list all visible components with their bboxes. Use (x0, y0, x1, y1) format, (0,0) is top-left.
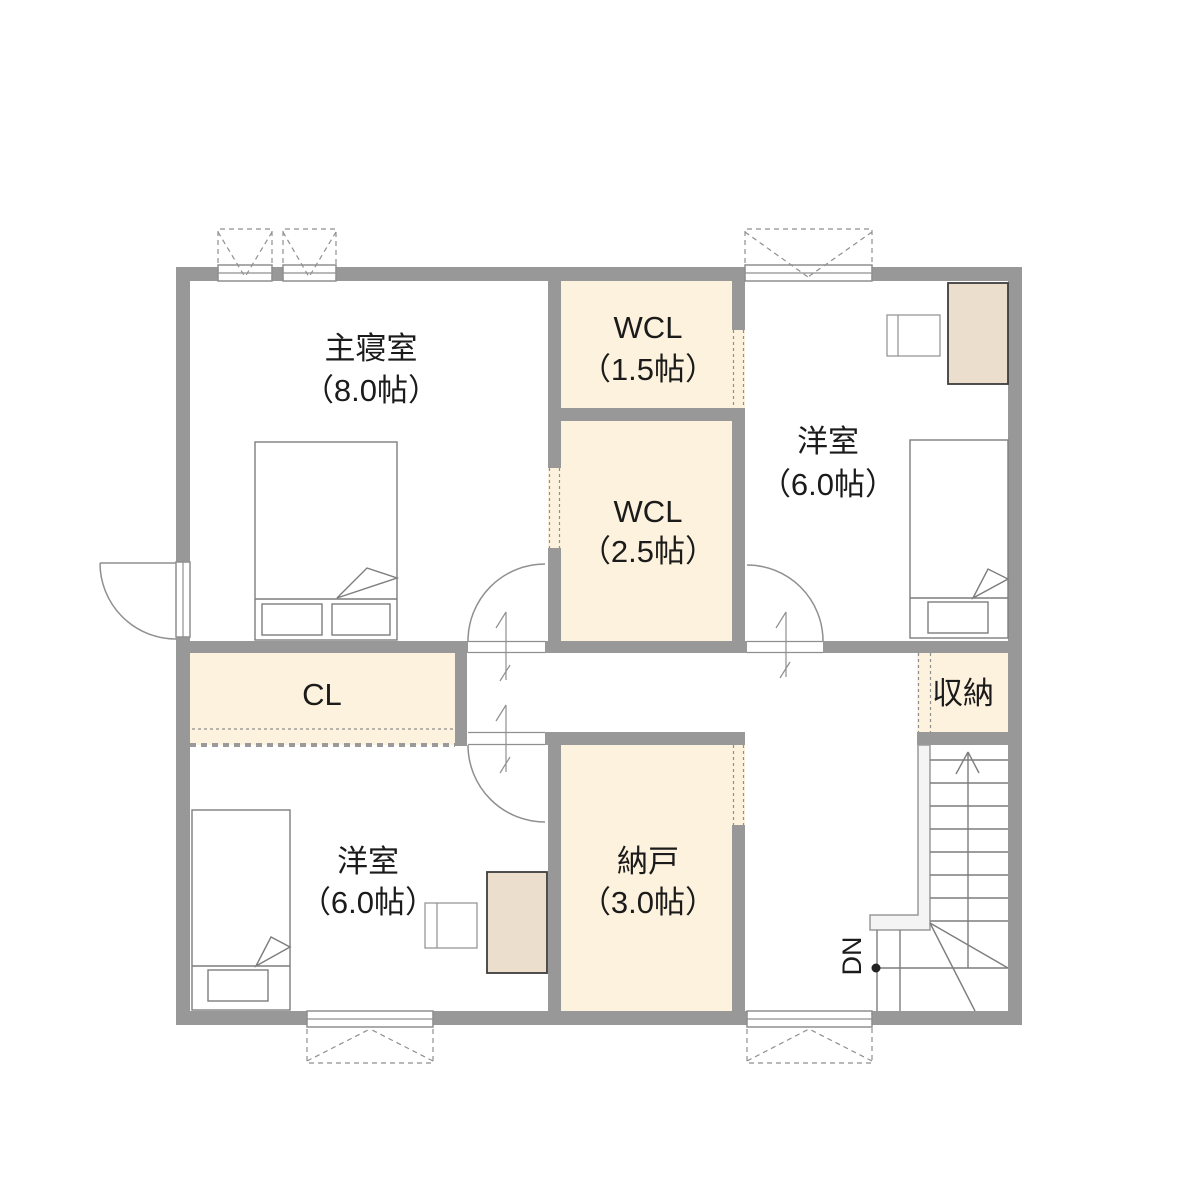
label-nando: 納戸 (617, 844, 679, 879)
wall-hall-lower-2 (917, 732, 1008, 745)
wall-hall-upper-1 (183, 641, 468, 653)
stair-path-end-dot (872, 964, 881, 973)
stairs: DN (837, 745, 1008, 1011)
wall-v1-mid (548, 548, 561, 653)
wall-bottom-1 (176, 1011, 307, 1025)
desk-south (487, 872, 547, 973)
wall-bottom-2 (433, 1011, 747, 1025)
label-nando-size: （3.0帖） (580, 885, 716, 920)
wall-v2-mid (732, 408, 745, 653)
label-bedroom-east-size: （6.0帖） (760, 467, 896, 502)
entry-door-arc (100, 563, 176, 639)
wall-right (1008, 267, 1022, 1025)
wall-left-1 (176, 267, 190, 562)
wall-v1-upper (548, 281, 561, 468)
pillow (262, 604, 322, 635)
label-shuno: 収納 (932, 676, 994, 711)
stairs-dn-label: DN (837, 937, 867, 976)
stair-handrail (870, 745, 930, 930)
wall-hall-lower-1 (545, 732, 745, 745)
floor-plan: DN (0, 0, 1200, 1200)
door-arc-bedroom-east (747, 565, 823, 641)
label-master-bedroom-size: （8.0帖） (303, 373, 439, 408)
wall-v1-lower (548, 732, 561, 1011)
label-wcl-large: WCL (614, 494, 683, 529)
bed-master (255, 442, 397, 640)
room-fill-wcl-large (561, 421, 732, 641)
wall-top-3 (336, 267, 745, 281)
pillow (928, 602, 988, 633)
label-master-bedroom: 主寝室 (325, 331, 418, 366)
door-arrow-master (496, 612, 510, 681)
stair-winder (877, 923, 1008, 1011)
wall-hall-upper-2 (545, 641, 747, 653)
wall-v2-upper (732, 281, 745, 330)
pillow (332, 604, 390, 635)
label-bedroom-east: 洋室 (797, 424, 859, 459)
label-closet: CL (302, 677, 342, 712)
wall-v2-lower (732, 825, 745, 1011)
wall-left-2 (176, 637, 190, 1025)
bed-east (910, 440, 1008, 638)
floor-plan-canvas: DN (0, 0, 1200, 1200)
desk-east (948, 283, 1008, 384)
pillow (208, 970, 268, 1001)
label-bedroom-south-size: （6.0帖） (300, 885, 436, 920)
chair-east (887, 315, 940, 356)
stair-path (872, 752, 1009, 973)
window-bedroom-east (745, 229, 872, 281)
label-wcl-small: WCL (614, 310, 683, 345)
wall-hall-upper-3 (823, 641, 1008, 653)
label-wcl-small-size: （1.5帖） (580, 352, 716, 387)
entry-door (100, 562, 190, 639)
stair-treads (930, 760, 1008, 921)
wall-bottom-3 (872, 1011, 1022, 1025)
wall-top-2 (272, 267, 283, 281)
door-arrow-bedroom-south (496, 705, 510, 773)
wall-top-4 (872, 267, 1022, 281)
window-hall (747, 1011, 872, 1063)
window-master-1 (218, 229, 272, 281)
label-bedroom-south: 洋室 (337, 844, 399, 879)
window-master-2 (283, 229, 336, 281)
window-bedroom-south (307, 1011, 433, 1063)
label-wcl-large-size: （2.5帖） (580, 534, 716, 569)
bed-south (192, 810, 290, 1010)
door-arrow-bedroom-east (776, 612, 790, 678)
wall-wcl-divider (548, 408, 745, 421)
wall-closet-right (455, 641, 467, 746)
